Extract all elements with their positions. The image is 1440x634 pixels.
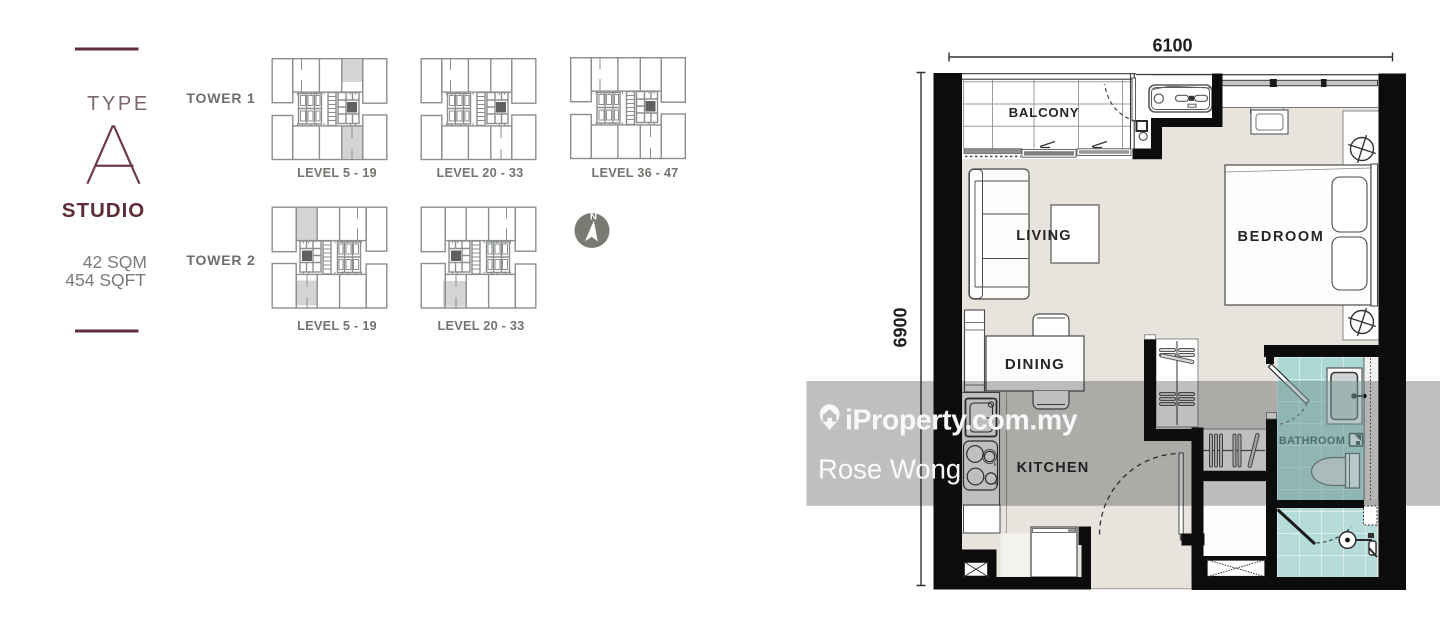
- svg-text:LEVEL 20 - 33: LEVEL 20 - 33: [436, 165, 523, 180]
- svg-text:454 SQFT: 454 SQFT: [65, 270, 146, 290]
- svg-text:Rose Wong: Rose Wong: [818, 454, 961, 485]
- svg-text:iProperty.com.my: iProperty.com.my: [845, 405, 1078, 437]
- svg-text:LEVEL 20 - 33: LEVEL 20 - 33: [437, 318, 524, 333]
- svg-text:BALCONY: BALCONY: [1009, 105, 1080, 120]
- svg-text:TOWER 2: TOWER 2: [186, 252, 255, 268]
- svg-text:42 SQM: 42 SQM: [83, 252, 147, 272]
- svg-text:LEVEL 5 - 19: LEVEL 5 - 19: [297, 165, 377, 180]
- svg-text:DINING: DINING: [1005, 356, 1065, 373]
- svg-text:LEVEL 36 - 47: LEVEL 36 - 47: [591, 165, 678, 180]
- svg-text:LEVEL 5 - 19: LEVEL 5 - 19: [297, 318, 377, 333]
- svg-text:LIVING: LIVING: [1016, 228, 1072, 244]
- svg-text:STUDIO: STUDIO: [62, 199, 145, 222]
- svg-text:BEDROOM: BEDROOM: [1238, 229, 1325, 245]
- svg-text:6100: 6100: [1152, 35, 1192, 55]
- svg-text:TYPE: TYPE: [87, 93, 150, 115]
- svg-text:TOWER 1: TOWER 1: [186, 90, 255, 106]
- svg-text:6900: 6900: [891, 307, 911, 347]
